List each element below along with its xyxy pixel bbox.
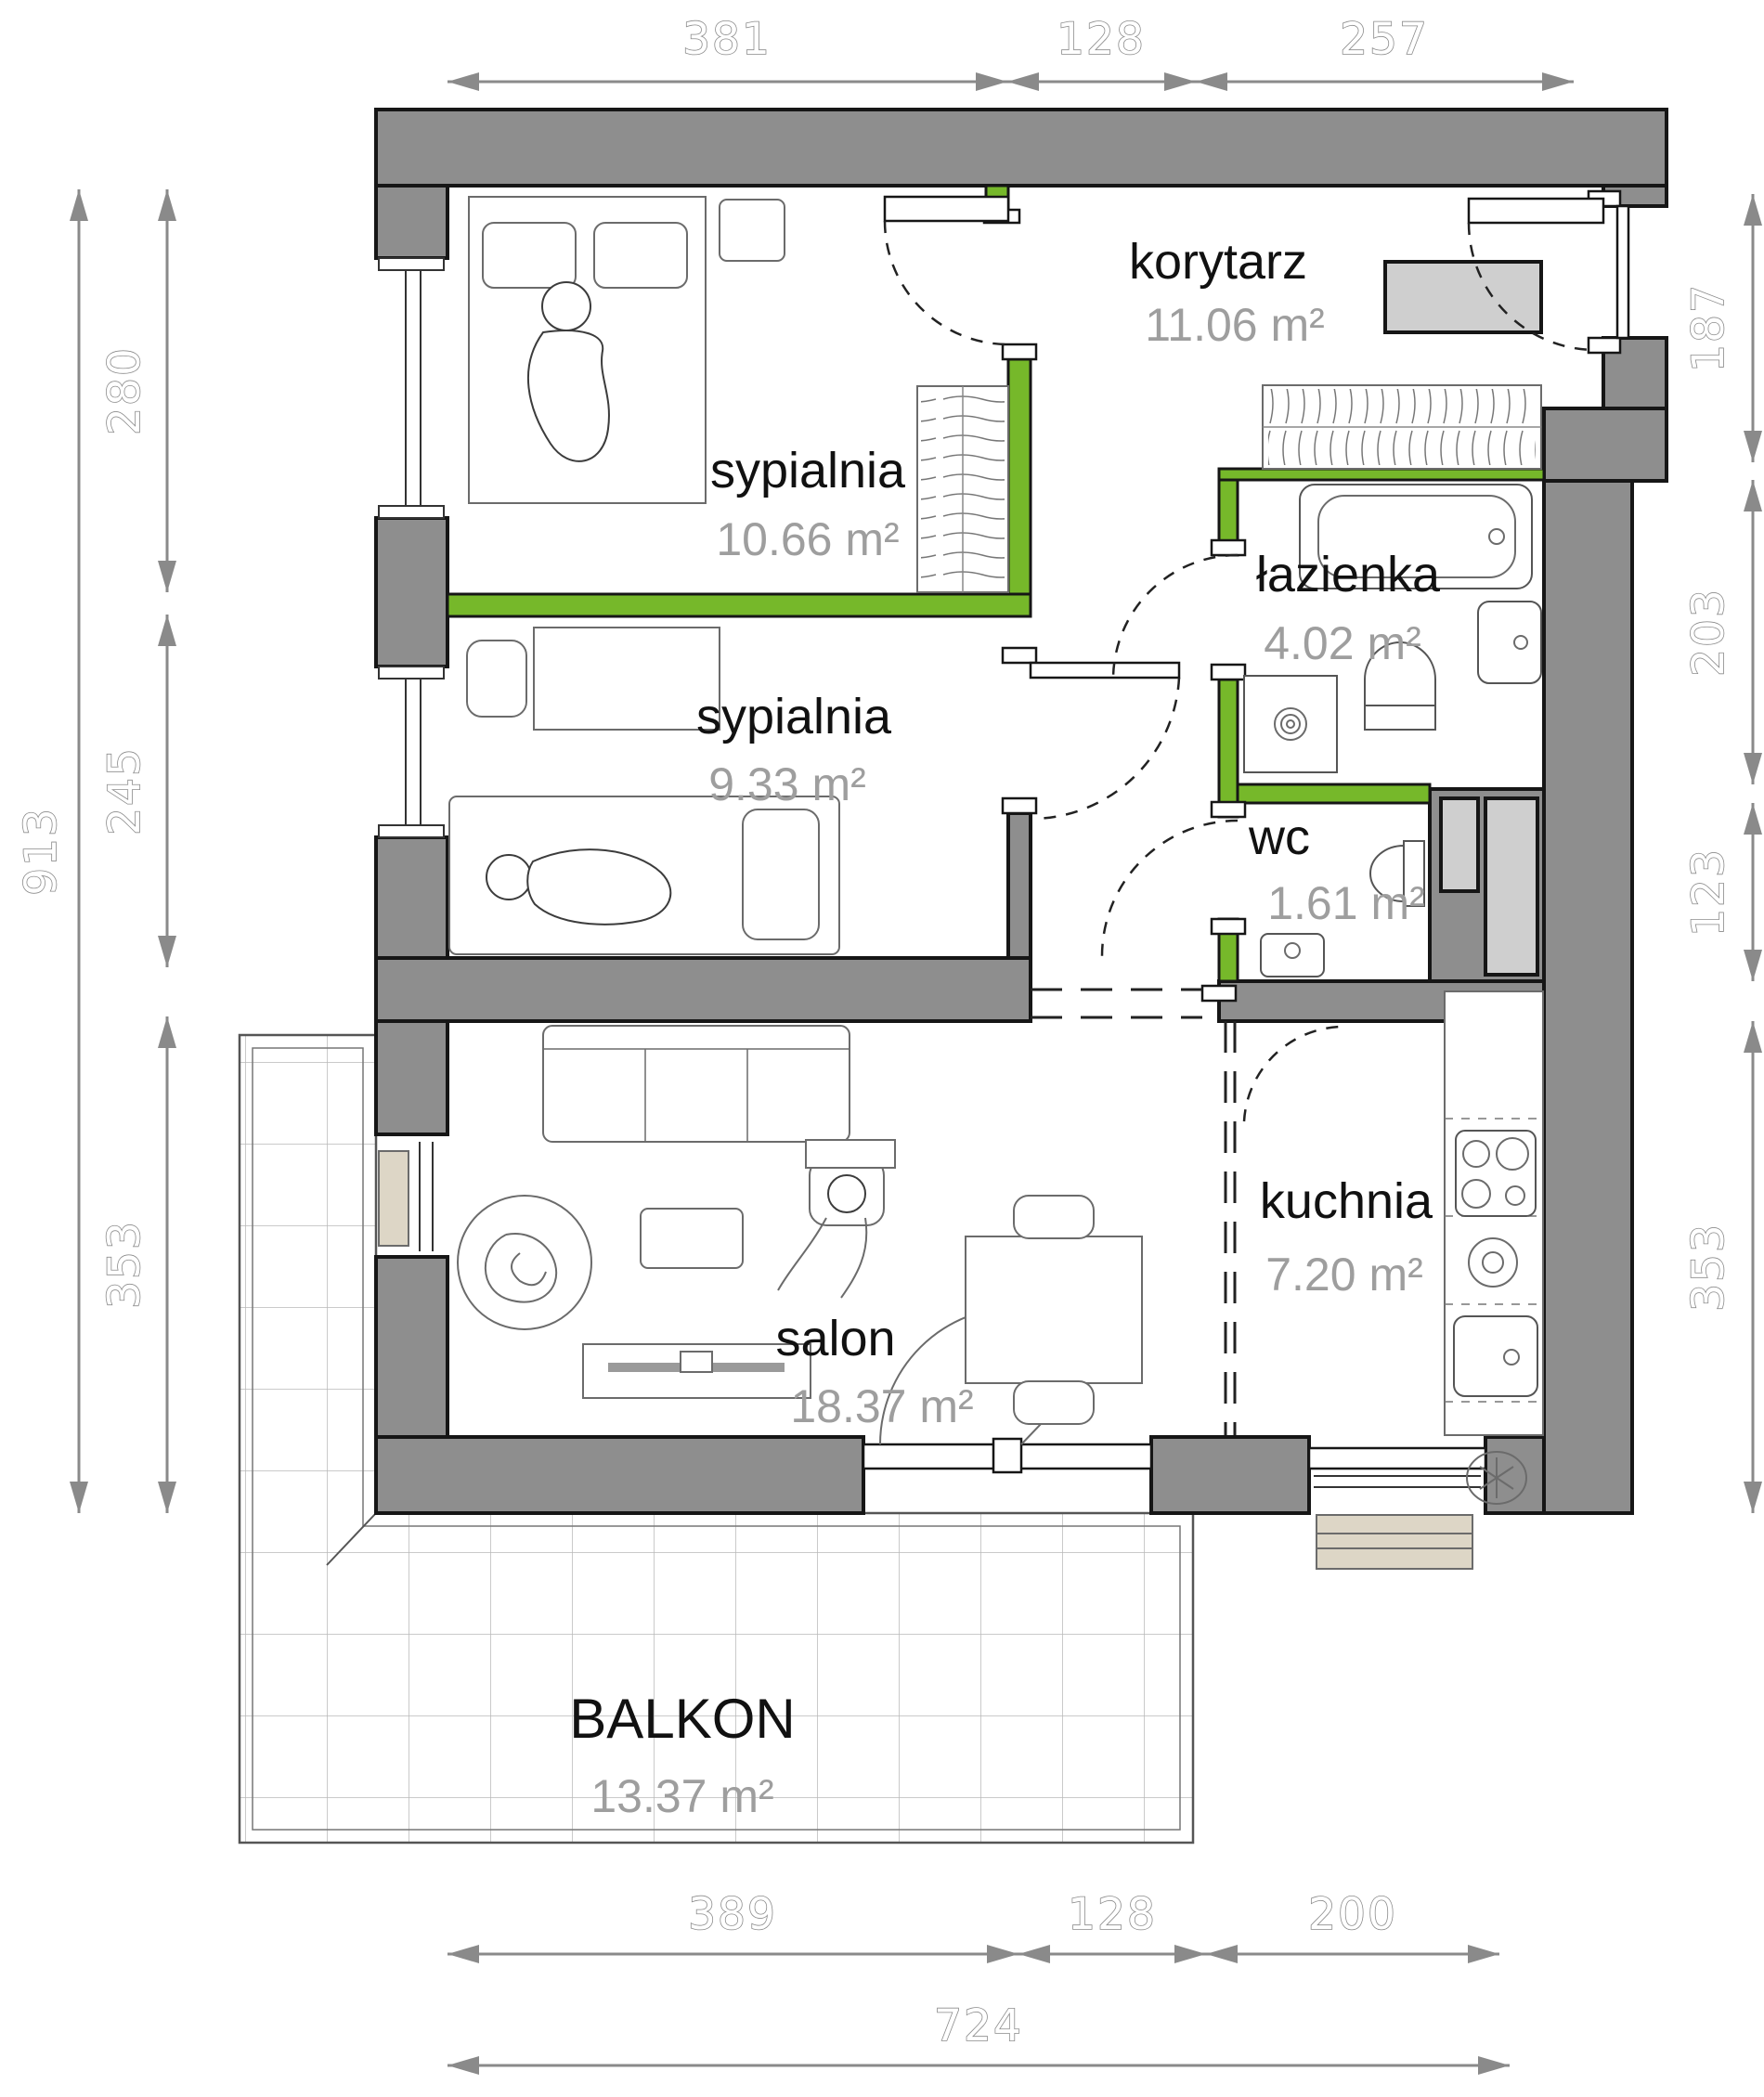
room-area-kuchnia: 7.20 m² [1265, 1249, 1423, 1301]
hall-wardrobe [1263, 385, 1541, 469]
room-label-lazienka: łazienka [1256, 547, 1441, 602]
dishwasher-icon [1454, 1316, 1537, 1396]
wc-washbasin [1261, 934, 1324, 977]
bed-double [469, 197, 706, 503]
dining-set [966, 1196, 1142, 1424]
daybed [449, 796, 839, 954]
room-area-wc: 1.61 m² [1267, 877, 1425, 929]
room-label-salon: salon [775, 1311, 895, 1366]
nightstand [720, 200, 785, 261]
armchair [458, 1196, 591, 1329]
room-area-balkon: 13.37 m² [590, 1770, 773, 1822]
bedroom2-door [1031, 663, 1179, 678]
room-label-korytarz: korytarz [1129, 234, 1307, 290]
room-label-sypialnia2: sypialnia [696, 689, 892, 744]
desk-with-person [778, 1140, 895, 1298]
dim-bottom-1: 389 [688, 1889, 777, 1940]
desk [806, 1140, 895, 1168]
floor-plan-page: korytarz 11.06 m² sypialnia 10.66 m² syp… [0, 0, 1764, 2097]
entrance-door [1469, 199, 1603, 223]
room-area-sypialnia1: 10.66 m² [716, 513, 899, 565]
room-label-kuchnia: kuchnia [1260, 1173, 1433, 1229]
kitchen-door-swing [1244, 1027, 1342, 1121]
salon-window [379, 1142, 433, 1251]
dim-top-3: 257 [1340, 14, 1429, 65]
chair [467, 641, 526, 717]
dim-right-4: 353 [1683, 1223, 1734, 1312]
dim-right-1: 187 [1683, 283, 1734, 372]
kitchen-window [1309, 1448, 1485, 1569]
table [534, 628, 720, 730]
dim-left-total: 913 [16, 807, 67, 896]
person-sitting [828, 1175, 865, 1212]
radiator [379, 1151, 409, 1246]
radiator [1317, 1515, 1472, 1569]
bedroom2-window [379, 667, 444, 837]
dim-right-3: 123 [1683, 848, 1734, 937]
bedroom1-wardrobe [917, 386, 1008, 592]
room-label-balkon: BALKON [569, 1688, 795, 1750]
room-area-korytarz: 11.06 m² [1145, 299, 1325, 351]
furniture [449, 197, 1543, 1504]
bathroom-door-swing [1113, 555, 1238, 680]
dim-left-1: 280 [99, 346, 150, 435]
dim-bottom-2: 128 [1068, 1889, 1157, 1940]
sofa [543, 1026, 850, 1142]
dim-bottom-3: 200 [1308, 1889, 1397, 1940]
room-area-lazienka: 4.02 m² [1264, 617, 1421, 669]
room-label-wc: wc [1248, 809, 1310, 865]
washbasin [1478, 602, 1541, 683]
dim-left-2: 245 [99, 746, 150, 835]
dim-left-3: 353 [99, 1220, 150, 1309]
shower [1244, 676, 1337, 772]
dim-right-2: 203 [1683, 588, 1734, 677]
bedroom1-door [885, 197, 1008, 221]
bedroom1-window [379, 258, 444, 518]
floor-plan-canvas: korytarz 11.06 m² sypialnia 10.66 m² syp… [0, 0, 1764, 2097]
coffee-table [641, 1209, 743, 1268]
room-area-sypialnia2: 9.33 m² [708, 758, 866, 810]
hob-icon [1456, 1131, 1536, 1216]
room-label-sypialnia1: sypialnia [710, 443, 906, 498]
room-area-salon: 18.37 m² [790, 1380, 973, 1432]
person-lying [486, 855, 531, 900]
dim-bottom-total: 724 [934, 2000, 1023, 2052]
kitchen-counter [1445, 991, 1543, 1504]
person-lying [542, 282, 590, 330]
dim-top-2: 128 [1057, 14, 1146, 65]
wc-door-swing [1102, 821, 1238, 956]
dim-top-1: 381 [682, 14, 772, 65]
